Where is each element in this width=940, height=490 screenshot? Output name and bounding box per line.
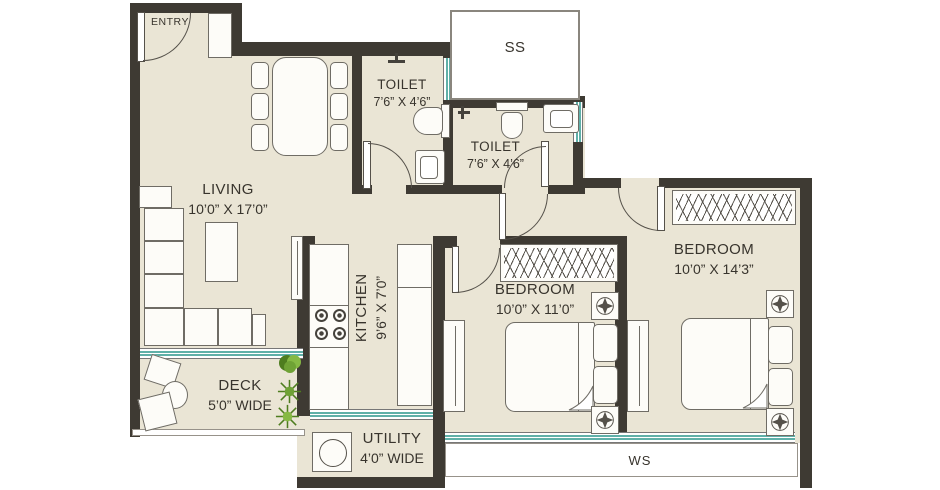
wall-toilet-bottom-b [406,185,502,194]
toilet1-label: TOILET 7’6” X 4’6” [352,76,452,110]
toilet2-label: TOILET 7’6” X 4’6” [443,138,548,172]
wall-bedroom2-top-b [659,178,812,188]
wardrobe [500,244,618,282]
tv-unit [291,236,303,300]
entry-label: ENTRY [146,11,194,32]
stove-burner-icon [315,327,328,340]
wardrobe-hatch [504,248,614,278]
wall-utility-bottom [297,477,440,488]
counter-divider [398,287,431,288]
lamp-box [766,290,794,318]
entry-cabinet [208,13,232,58]
light-symbol-icon [592,407,618,433]
dining-chair [251,62,269,89]
wc-bowl-icon [501,112,523,139]
dresser [627,320,649,412]
sofa-cushion [144,241,184,274]
dresser [443,320,465,412]
sofa-corner [144,308,184,346]
dining-chair [330,93,348,120]
deck-railing [132,429,305,436]
lamp-box [591,406,619,434]
wardrobe [672,190,796,225]
sofa-cushion [184,308,218,346]
stove-burner-icon [333,309,346,322]
plant-icon [276,350,304,378]
window-kitchen-utility [310,409,433,420]
ws-label: WS [612,451,668,472]
basin-inner [550,110,573,128]
counter-divider [310,305,348,306]
wall-step [232,3,242,46]
stove-burner-icon [315,309,328,322]
wall-left [130,3,140,437]
sofa-cushion [218,308,252,346]
kitchen-counter-left [309,244,349,410]
sofa-armrest [252,314,266,346]
nightstand [593,324,618,362]
blanket-fold-icon [742,383,768,409]
light-symbol-icon [767,409,793,435]
lamp-box [766,408,794,436]
wall-top [232,42,455,56]
bedroom1-label: BEDROOM 10’0” X 11’0” [455,280,615,318]
dining-table [272,57,328,156]
deck-label: DECK 5’0” WIDE [178,376,302,414]
window-bedrooms [445,432,795,443]
kitchen-label: KITCHEN 9’6” X 7’0” [352,238,390,378]
kitchen-counter-right [397,244,432,406]
coffee-table [205,222,238,282]
washbasin-icon [543,104,579,133]
bed [681,318,769,410]
dresser-line [639,326,640,405]
sofa-cushion [144,274,184,308]
living-label: LIVING 10’0” X 17’0” [138,180,318,218]
tv-panel [297,241,298,296]
nightstand [768,326,793,364]
stove-burner-icon [333,327,346,340]
wc-tank [496,102,528,111]
floor-plan: SS WS [0,0,940,490]
dresser-line [455,326,456,405]
wc-bowl-icon [413,107,443,135]
utility-label: UTILITY 4’0” WIDE [338,429,446,467]
basin-inner [420,156,438,179]
nightstand [593,366,618,404]
shower-icon [395,53,398,61]
light-symbol-icon [767,291,793,317]
ss-label: SS [450,38,580,59]
bed [505,322,595,412]
wall-right [800,178,812,488]
wall-toilet1-left [352,54,362,193]
counter-divider [310,347,348,348]
washbasin-icon [415,150,445,184]
dining-chair [330,124,348,151]
nightstand [768,368,793,406]
dining-chair [330,62,348,89]
wall-bedroom2-top-a [573,178,621,188]
bedroom2-label: BEDROOM 10’0” X 14’3” [628,240,800,278]
dining-chair [251,93,269,120]
dining-chair [251,124,269,151]
shower-icon [458,111,470,114]
wardrobe-hatch [676,194,792,221]
